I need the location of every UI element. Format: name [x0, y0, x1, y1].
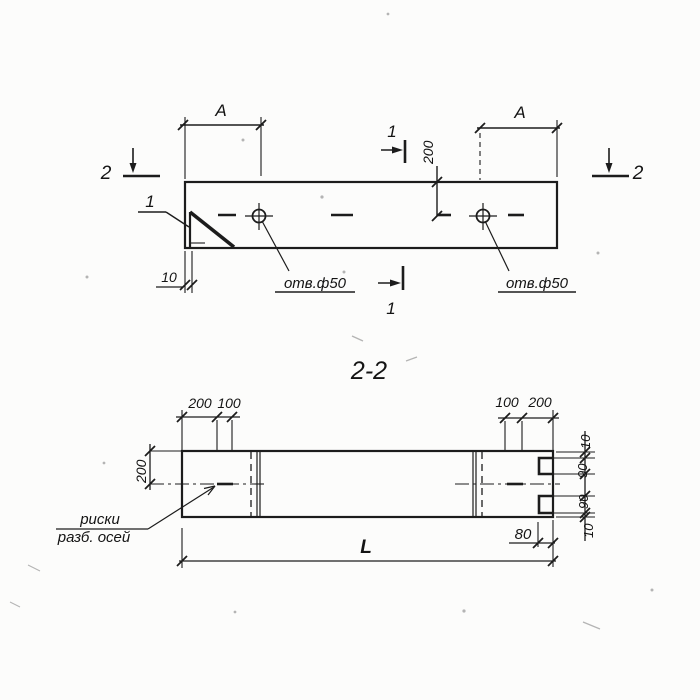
plan-dim-200: 200 — [420, 140, 442, 221]
dim-label-90-upper: 90 — [575, 463, 590, 478]
dim-label-a-right: А — [513, 103, 525, 122]
section-slot-lower — [539, 496, 553, 513]
dim-label-200: 200 — [527, 394, 552, 410]
section-dim-height: 200 — [133, 444, 183, 490]
dim-label-10-top: 10 — [578, 434, 593, 449]
cut-2-label: 2 — [100, 163, 112, 184]
plan-cut-mark-2-right: 2 — [592, 148, 644, 184]
plan-beam-outline — [185, 182, 557, 248]
plan-dim-10: 10 — [156, 251, 197, 293]
section-dim-length: L — [177, 528, 558, 568]
section-dim-top-left: 200 100 — [176, 395, 241, 450]
dim-label-length: L — [360, 537, 372, 558]
hole-note-label: отв.ф50 — [284, 275, 347, 292]
arrow-down-icon — [606, 163, 613, 173]
dim-label-200: 200 — [187, 395, 212, 411]
dim-label-a-left: А — [214, 101, 226, 120]
dim-label-10-bottom: 10 — [581, 523, 596, 538]
plan-hole-note-left: отв.ф50 — [262, 221, 355, 292]
section-view: 2-2 200 — [56, 357, 596, 568]
dim-label-10: 10 — [161, 269, 177, 285]
arrow-right-icon — [390, 280, 401, 287]
plan-cut-mark-1-top: 1 — [381, 122, 405, 163]
plan-corner-plate — [189, 212, 234, 247]
dim-label-90-lower: 90 — [576, 494, 591, 509]
section-dim-top-right: 100 200 — [495, 394, 559, 451]
dim-label-80: 80 — [515, 526, 532, 543]
hole-note-label: отв.ф50 — [506, 275, 569, 292]
dim-label-200-plan: 200 — [420, 140, 436, 165]
dim-label-100: 100 — [495, 394, 519, 410]
plan-hole-note-right: отв.ф50 — [485, 221, 576, 292]
plan-hole-right — [437, 203, 524, 230]
cut-2-label: 2 — [632, 163, 644, 184]
dim-label-height: 200 — [133, 459, 149, 484]
axis-note-line1: риски — [79, 511, 120, 528]
section-title: 2-2 — [350, 357, 387, 385]
plan-cut-mark-2-left: 2 — [100, 148, 160, 184]
arrow-right-icon — [392, 147, 403, 154]
section-slot-upper — [539, 458, 553, 474]
cut-1-label: 1 — [386, 299, 395, 318]
plan-hole-left — [218, 203, 353, 230]
axis-note-line2: разб. осей — [57, 529, 131, 546]
plan-callout-1: 1 — [138, 192, 189, 227]
plan-view: 1 А — [100, 101, 644, 318]
callout-label: 1 — [145, 192, 154, 211]
arrow-down-icon — [130, 163, 137, 173]
section-dim-right-chain: 10 90 90 10 — [554, 431, 596, 541]
plan-dim-a-right: А — [475, 103, 562, 180]
technical-drawing-canvas: 1 А — [0, 0, 700, 700]
plan-dim-a-left: А — [178, 101, 266, 179]
section-dim-80: 80 — [509, 520, 558, 567]
plan-cut-mark-1-bottom: 1 — [378, 266, 403, 318]
cut-1-label: 1 — [387, 122, 396, 141]
dim-label-100: 100 — [217, 395, 241, 411]
